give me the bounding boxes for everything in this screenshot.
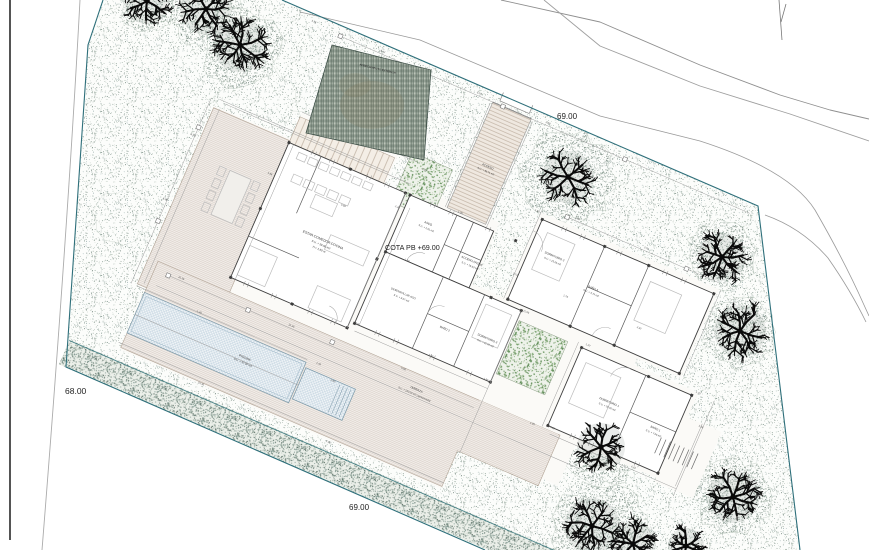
svg-text:69.00: 69.00 [557,112,578,121]
svg-text:COTA PB +69.00: COTA PB +69.00 [385,243,440,252]
svg-text:68.00: 68.00 [65,386,87,396]
svg-text:69.00: 69.00 [349,503,370,512]
